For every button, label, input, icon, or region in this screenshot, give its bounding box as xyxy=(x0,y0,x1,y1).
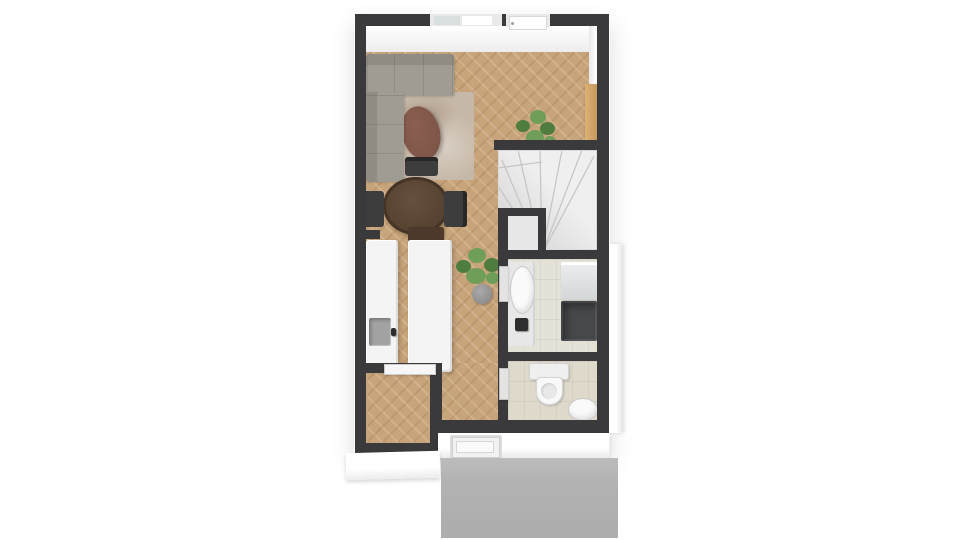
wall-stairs-bathroom xyxy=(498,250,609,259)
wall-kitchen-stub xyxy=(355,230,380,239)
toilet-door xyxy=(499,368,509,400)
washing-machine xyxy=(561,262,597,300)
window-pane-right xyxy=(462,16,492,25)
floorplan-render: { "image": { "kind": "3d-floor-plan", "v… xyxy=(0,0,960,540)
kitchen-faucet xyxy=(391,328,396,336)
bathroom-basin xyxy=(510,266,535,314)
dining-chair-right xyxy=(444,191,467,227)
exterior-wall-face-right xyxy=(609,244,622,433)
wall-closet-right xyxy=(538,208,546,250)
bathroom-door xyxy=(499,266,509,302)
under-stair-closet-floor xyxy=(506,216,538,250)
wall-hall-divider xyxy=(498,208,508,434)
balcony-door xyxy=(509,16,547,30)
front-door-panel xyxy=(456,441,494,453)
corner-sofa-left-section xyxy=(366,92,404,182)
paved-entrance xyxy=(441,458,618,538)
exterior-wall-face-bottom-left xyxy=(346,451,441,480)
kitchen-counter xyxy=(366,240,398,370)
bathroom-faucet xyxy=(515,318,528,331)
dining-chair-top xyxy=(405,157,438,176)
front-door xyxy=(450,435,502,460)
window-pane-left xyxy=(434,16,460,25)
kitchen-island xyxy=(408,240,452,372)
kitchen-sink xyxy=(369,318,391,346)
wall-living-stairs xyxy=(494,140,609,150)
balcony-door-handle xyxy=(511,22,514,25)
wall-bottom xyxy=(438,420,609,434)
storage-door xyxy=(384,364,436,375)
wall-right xyxy=(597,14,609,434)
corner-sofa-top-section xyxy=(366,54,454,96)
hand-basin xyxy=(568,398,598,421)
storage-room-floor xyxy=(366,373,430,443)
toilet xyxy=(536,377,563,405)
top-wall-inner-face xyxy=(366,26,597,52)
dryer xyxy=(561,301,597,341)
wall-bathroom-toilet xyxy=(498,352,609,361)
